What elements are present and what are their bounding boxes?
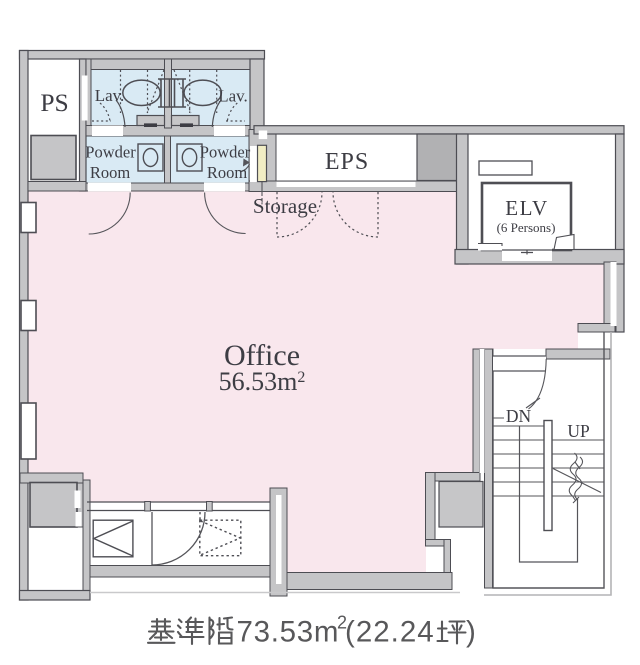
svg-text:(22.24: (22.24 <box>345 616 435 649</box>
svg-text:(6 Persons): (6 Persons) <box>497 220 556 235</box>
svg-text:PS: PS <box>40 88 68 117</box>
svg-text:Lav.: Lav. <box>95 86 125 105</box>
svg-text:Powder: Powder <box>85 143 136 162</box>
svg-text:56.53m2: 56.53m2 <box>219 367 306 396</box>
svg-text:73.53m: 73.53m <box>237 616 340 649</box>
svg-text:EPS: EPS <box>325 149 369 175</box>
svg-text:Lav.: Lav. <box>218 87 248 106</box>
svg-text:UP: UP <box>567 421 590 441</box>
svg-text:DN: DN <box>506 406 532 426</box>
svg-text:): ) <box>466 616 476 649</box>
svg-text:Room: Room <box>90 163 131 182</box>
svg-text:ELV: ELV <box>505 196 548 220</box>
svg-text:Powder: Powder <box>200 143 251 162</box>
svg-text:Storage: Storage <box>253 194 317 218</box>
svg-text:Room: Room <box>207 163 248 182</box>
